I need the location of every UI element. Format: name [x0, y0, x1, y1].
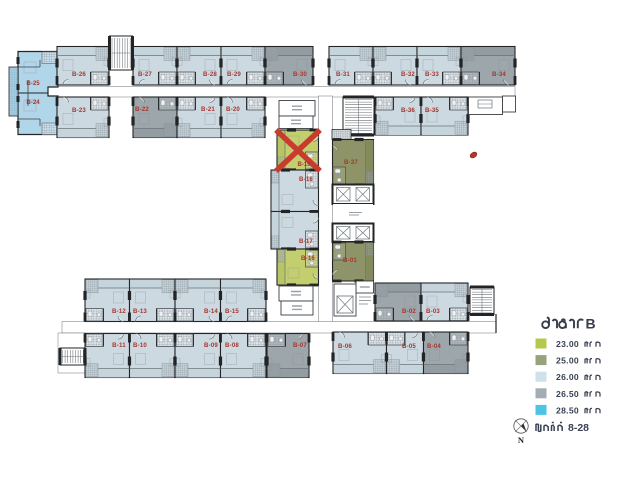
svg-text:B-37: B-37	[344, 159, 358, 166]
svg-text:B-19: B-19	[297, 162, 311, 168]
svg-text:B-34: B-34	[492, 71, 506, 78]
svg-text:B-11: B-11	[112, 342, 126, 349]
svg-text:B-24: B-24	[26, 99, 40, 106]
svg-text:B-04: B-04	[427, 343, 441, 350]
svg-text:B-36: B-36	[401, 107, 415, 114]
svg-text:B-14: B-14	[204, 308, 218, 315]
svg-text:B-15: B-15	[225, 308, 239, 315]
svg-text:B-07: B-07	[293, 342, 307, 349]
svg-text:B-05: B-05	[402, 343, 416, 350]
svg-text:B-12: B-12	[112, 308, 126, 315]
svg-text:B-23: B-23	[72, 107, 86, 114]
svg-text:28.50: 28.50	[556, 405, 579, 415]
svg-text:B-25: B-25	[26, 80, 40, 87]
svg-text:B-33: B-33	[425, 71, 439, 78]
svg-text:B-13: B-13	[133, 308, 147, 315]
svg-text:B-31: B-31	[336, 71, 350, 78]
svg-text:B-21: B-21	[201, 106, 215, 113]
svg-text:25.00: 25.00	[556, 356, 579, 366]
svg-text:23.00: 23.00	[556, 339, 579, 349]
svg-text:26.00: 26.00	[556, 372, 579, 382]
svg-text:B-03: B-03	[426, 308, 440, 315]
svg-text:B-27: B-27	[138, 71, 152, 78]
svg-text:B-28: B-28	[203, 71, 217, 78]
svg-text:N: N	[518, 435, 525, 445]
svg-text:B-18: B-18	[299, 176, 313, 183]
svg-text:B-17: B-17	[299, 238, 313, 245]
svg-text:B-32: B-32	[401, 71, 415, 78]
svg-text:B: B	[586, 316, 596, 332]
svg-text:B-16: B-16	[301, 255, 315, 262]
svg-text:B-22: B-22	[135, 106, 149, 113]
svg-text:B-10: B-10	[133, 342, 147, 349]
svg-text:B-01: B-01	[343, 257, 357, 264]
svg-text:B-08: B-08	[225, 342, 239, 349]
svg-text:B-35: B-35	[425, 107, 439, 114]
svg-text:B-26: B-26	[72, 71, 86, 78]
svg-text:B-20: B-20	[226, 106, 240, 113]
svg-text:B-30: B-30	[293, 71, 307, 78]
svg-text:26.50: 26.50	[556, 389, 579, 399]
svg-text:8-28: 8-28	[568, 422, 589, 434]
svg-text:B-06: B-06	[338, 343, 352, 350]
svg-text:B-29: B-29	[227, 71, 241, 78]
svg-text:B-02: B-02	[402, 308, 416, 315]
svg-text:B-09: B-09	[204, 342, 218, 349]
